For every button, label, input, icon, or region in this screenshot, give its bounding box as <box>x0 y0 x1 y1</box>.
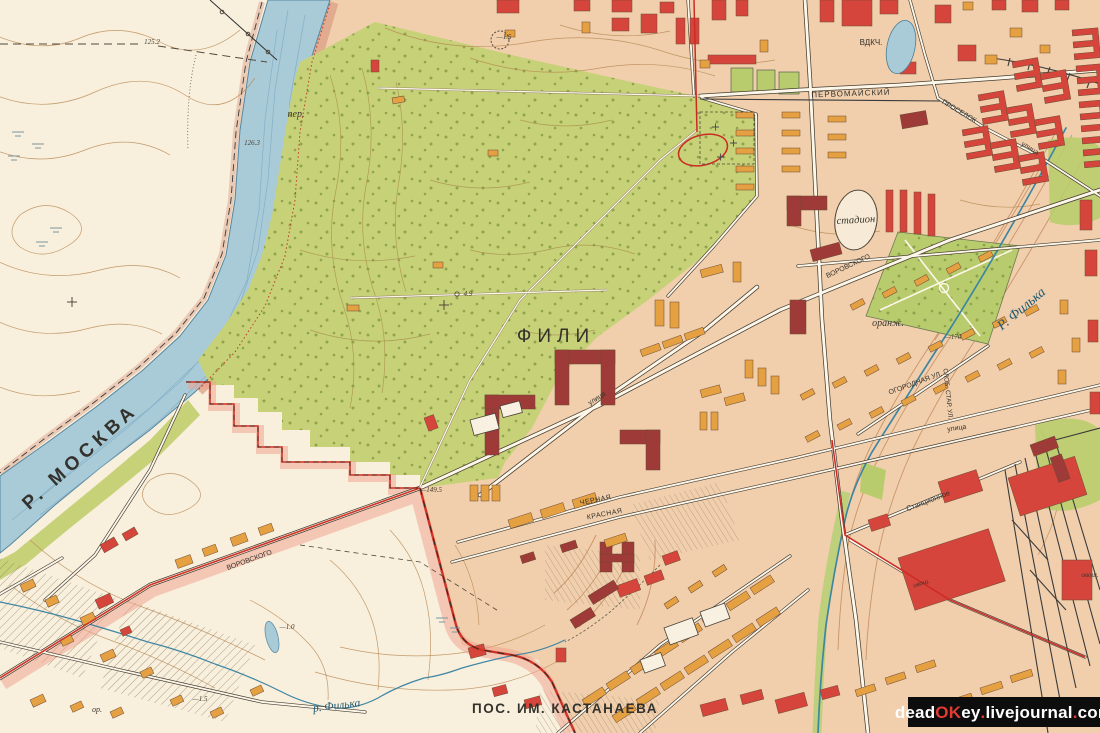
building <box>1058 370 1066 384</box>
building <box>708 55 756 64</box>
building <box>782 112 800 118</box>
elevation-n15-village: —1.5 <box>192 695 208 703</box>
building <box>782 130 800 136</box>
building <box>842 0 872 26</box>
building-e-shaped <box>990 138 1021 172</box>
building <box>928 194 935 236</box>
building-e-shaped <box>1018 151 1049 185</box>
building <box>935 5 951 23</box>
building <box>1062 560 1092 600</box>
building <box>497 0 519 13</box>
building <box>700 60 710 68</box>
building <box>1080 200 1092 230</box>
building <box>900 190 907 232</box>
building <box>1060 300 1068 314</box>
building <box>612 0 632 12</box>
building <box>488 150 498 156</box>
building-e-shaped <box>1040 69 1071 103</box>
building-e-shaped <box>1079 100 1100 132</box>
building <box>1040 45 1050 53</box>
building <box>787 196 801 226</box>
label-vdkch: ВДКЧ. <box>860 38 883 47</box>
label-or: ор. <box>92 705 102 714</box>
building <box>1072 338 1080 352</box>
building <box>371 60 379 72</box>
building <box>600 554 634 562</box>
building-e-shaped <box>1012 57 1043 91</box>
building <box>1085 250 1097 276</box>
building <box>481 485 489 501</box>
building <box>712 0 726 20</box>
elevation-126: 126.3 <box>244 139 260 147</box>
building <box>736 148 754 154</box>
building <box>733 262 741 282</box>
building <box>555 350 569 405</box>
label-stadion: стадион <box>836 214 875 227</box>
elevation-n15-pit: —1.5 <box>496 33 512 41</box>
building <box>985 55 997 64</box>
building <box>556 648 566 662</box>
building <box>646 430 660 470</box>
building <box>736 184 754 190</box>
building <box>886 190 893 232</box>
building <box>782 148 800 154</box>
building-e-shaped <box>978 90 1009 124</box>
building <box>790 300 806 334</box>
building-e-shaped <box>1034 115 1065 149</box>
watermark: deadOKey.livejournal.com <box>908 697 1100 727</box>
building-e-shaped <box>962 125 993 159</box>
building <box>492 485 500 501</box>
building <box>736 130 754 136</box>
building <box>992 0 1006 10</box>
building <box>1055 0 1069 10</box>
label-fili: ФИЛИ <box>517 326 595 347</box>
watermark-text: com <box>1078 704 1100 721</box>
building <box>828 116 846 122</box>
building <box>782 166 800 172</box>
building <box>655 300 664 326</box>
building <box>1090 392 1100 414</box>
elevation-170: —170 <box>944 333 962 341</box>
watermark-text: ey <box>961 704 980 721</box>
building <box>470 485 478 501</box>
label-oranzh: оранж. <box>872 318 904 329</box>
topographic-map: Р. МОСКВА ФИЛИ ПОС. ИМ. КАСТАНАЕВА Р. Фи… <box>0 0 1100 733</box>
building <box>574 0 590 11</box>
building <box>670 302 679 328</box>
building <box>433 262 443 268</box>
building <box>771 376 779 394</box>
building <box>676 18 685 44</box>
building <box>963 2 973 10</box>
building-e-shaped <box>1072 28 1100 60</box>
elevation-49: 4.9 <box>464 290 473 298</box>
building <box>1022 0 1038 12</box>
building <box>641 14 657 33</box>
building <box>828 134 846 140</box>
building <box>711 412 718 430</box>
watermark-text: livejournal <box>985 704 1072 721</box>
building <box>880 0 898 14</box>
building <box>914 192 921 234</box>
elevation-125: 125.2 <box>144 38 160 46</box>
elevation-149: —149.5 <box>419 486 442 494</box>
building-e-shaped <box>1076 64 1100 96</box>
building <box>736 166 754 172</box>
building <box>958 45 976 61</box>
building <box>736 112 754 118</box>
building <box>828 152 846 158</box>
building <box>736 0 748 16</box>
building <box>758 368 766 386</box>
building <box>582 22 590 33</box>
building <box>760 40 768 52</box>
elevation-n10: —1.0 <box>279 623 295 631</box>
building <box>660 2 674 13</box>
building <box>612 18 629 31</box>
building-e-shaped <box>1082 136 1100 168</box>
building <box>347 305 359 311</box>
building <box>1010 28 1022 37</box>
label-per: пер. <box>288 109 305 120</box>
label-ovosh-edge: овощ. <box>1082 571 1099 579</box>
building-e-shaped <box>1006 103 1037 137</box>
watermark-text: dead <box>895 704 935 721</box>
building <box>820 0 834 22</box>
label-pos-kastanaeva: ПОС. ИМ. КАСТАНАЕВА <box>472 701 658 716</box>
building <box>700 412 707 430</box>
watermark-accent: OK <box>935 704 961 721</box>
building <box>1088 320 1098 342</box>
map-canvas: Р. МОСКВА ФИЛИ ПОС. ИМ. КАСТАНАЕВА Р. Фи… <box>0 0 1100 733</box>
building <box>745 360 753 378</box>
